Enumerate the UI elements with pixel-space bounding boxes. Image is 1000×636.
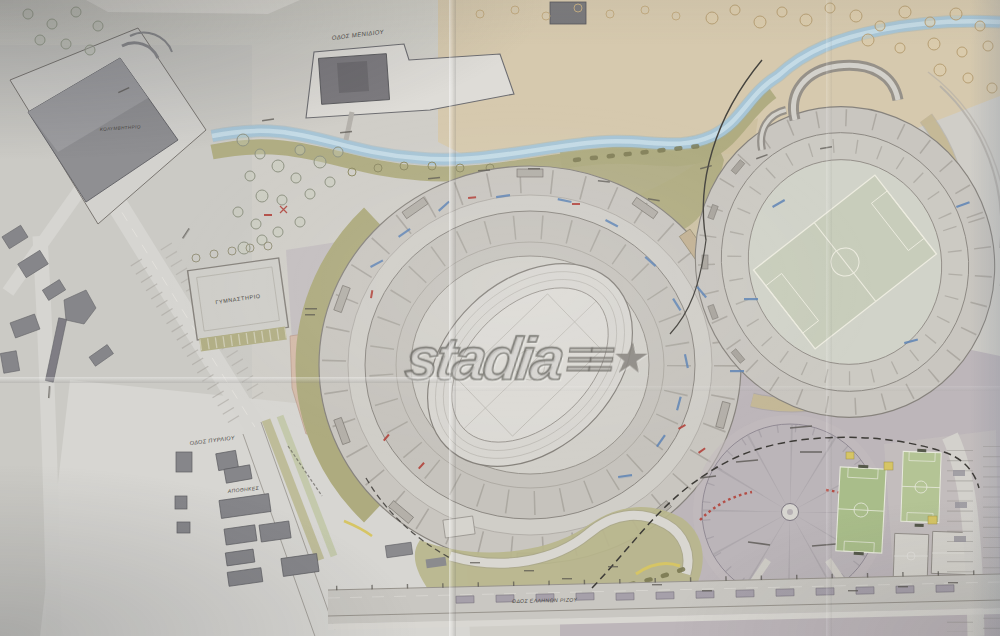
main-stadium (308, 166, 741, 564)
site-plan-photo: ΚΟΛΥΜΒΗΤΗΡΙΟ ΟΔΟΣ ΜΕΝΙΔΙΟΥ (0, 0, 1000, 636)
training-pitch-1 (836, 464, 887, 556)
site-plan-drawing: ΚΟΛΥΜΒΗΤΗΡΙΟ ΟΔΟΣ ΜΕΝΙΔΙΟΥ (0, 0, 1000, 636)
training-pitch-2 (901, 448, 942, 527)
